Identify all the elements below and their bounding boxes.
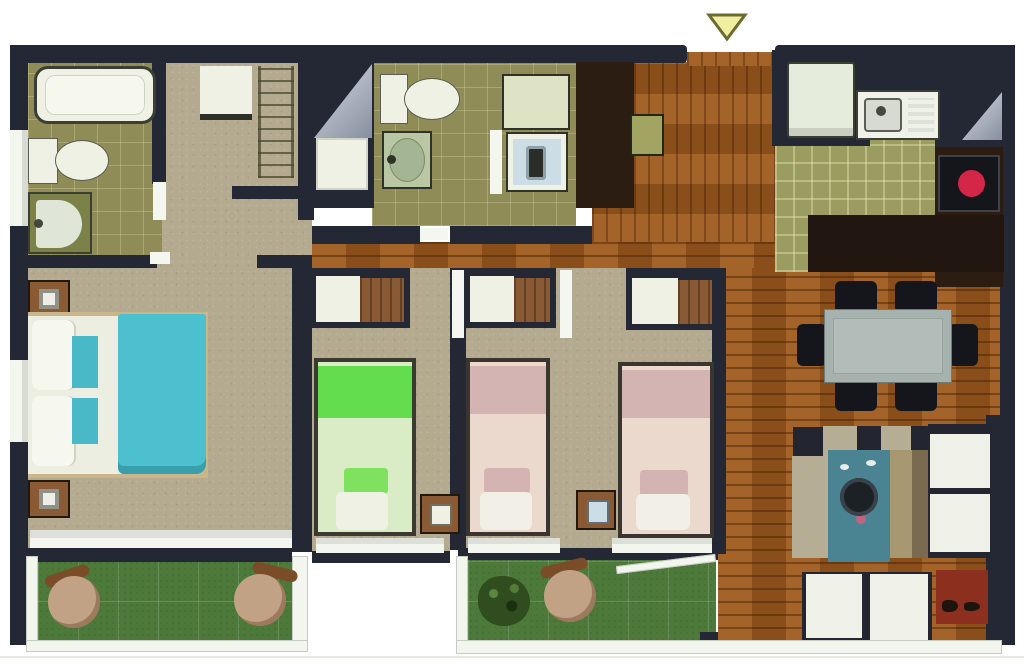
lamp-master-bottom bbox=[39, 489, 59, 509]
left-wall-window2 bbox=[10, 360, 28, 442]
dining-chair-right bbox=[948, 324, 978, 366]
wall-bath2-south-a bbox=[312, 226, 420, 244]
wall-hall-stub bbox=[232, 186, 298, 199]
rug-dot2 bbox=[866, 460, 876, 466]
terrace1-rail-bottom bbox=[26, 640, 308, 652]
armchair-right bbox=[928, 424, 992, 558]
bed2-wardrobe-shelf bbox=[360, 278, 404, 322]
bed3-wardrobeA-frame bbox=[464, 268, 556, 328]
shower-tray bbox=[316, 138, 368, 190]
terrace1-chair2 bbox=[234, 574, 286, 626]
bed2-pillow bbox=[336, 492, 388, 530]
bed2-nightstand bbox=[420, 494, 460, 534]
bathtub bbox=[34, 66, 156, 124]
cooktop bbox=[938, 155, 1000, 212]
bed2-nightstand-pane bbox=[430, 504, 452, 526]
wall-master-north bbox=[257, 255, 312, 268]
entry-doorway-floor bbox=[687, 52, 775, 66]
bathtub-basin bbox=[45, 75, 145, 115]
rug-dot1 bbox=[840, 464, 849, 470]
bed3-door-leaf1 bbox=[452, 270, 464, 338]
bedB-blanket bbox=[622, 370, 710, 418]
bed3-windowB bbox=[612, 538, 712, 553]
cooktop-burner bbox=[958, 170, 985, 197]
master-pillow2 bbox=[32, 396, 76, 466]
master-blanket bbox=[118, 314, 206, 474]
bedB-accent-pillow bbox=[640, 470, 688, 496]
coffee-table bbox=[840, 478, 878, 516]
master-bed bbox=[28, 312, 208, 478]
sofa-cushion2 bbox=[870, 574, 928, 640]
bed2-accent-pillow bbox=[344, 468, 388, 494]
sink-vanity2 bbox=[382, 131, 432, 189]
shoe-left bbox=[942, 600, 958, 612]
bed3-nightstand bbox=[576, 490, 616, 530]
sofa-cushion1 bbox=[806, 574, 862, 638]
master-accent-pillow1 bbox=[72, 336, 98, 388]
master-accent-pillow2 bbox=[72, 398, 98, 444]
bed3-single-bedB bbox=[618, 362, 714, 538]
sofa-side-right-tan bbox=[890, 450, 912, 558]
sofa-bottom bbox=[802, 572, 932, 642]
bath2-south-door-leaf bbox=[420, 228, 448, 240]
terrace2-shrub bbox=[478, 576, 530, 626]
terrace1-chair1 bbox=[48, 576, 100, 628]
washing-machine bbox=[506, 132, 568, 192]
master-window bbox=[30, 530, 292, 548]
dining-table-top bbox=[833, 318, 943, 374]
red-doormat bbox=[936, 570, 988, 624]
wall-kitchen-top-patch bbox=[854, 55, 940, 93]
kitchen-faucet bbox=[876, 106, 886, 116]
balcony-rail-bottom bbox=[456, 640, 1002, 654]
bedB-pillow bbox=[636, 494, 690, 530]
bedA-pillow bbox=[480, 492, 532, 530]
bed3-wardrobeB-frame bbox=[626, 268, 718, 330]
hall-closet bbox=[200, 66, 252, 120]
wall-bath1-south bbox=[25, 255, 157, 268]
master-door-leaf bbox=[150, 252, 170, 264]
bed3-wardrobeB-door bbox=[632, 278, 678, 324]
bed3-wardrobeA-door bbox=[470, 276, 514, 322]
bed3-wardrobeA-shelf bbox=[514, 278, 550, 322]
nightstand-master-bottom bbox=[28, 480, 70, 518]
wall-master-east bbox=[292, 268, 312, 552]
bedA-accent-pillow bbox=[484, 468, 530, 494]
bed3-single-bedA bbox=[466, 358, 550, 536]
bed3-wardrobeB-shelf bbox=[678, 280, 712, 324]
toilet1-tank bbox=[28, 138, 58, 184]
armchair-cushion-bottom bbox=[930, 494, 990, 552]
floor-plan-canvas: { "type": "apartment-floor-plan", "palet… bbox=[0, 0, 1024, 669]
hall-shelving-rack bbox=[258, 66, 294, 178]
left-wall-window1 bbox=[10, 130, 28, 226]
shoe-right bbox=[964, 602, 980, 611]
bath2-door-leaf bbox=[490, 130, 502, 194]
refrigerator bbox=[787, 62, 855, 138]
armchair-cushion-top bbox=[930, 434, 990, 488]
bathroom1-door-leaf bbox=[153, 182, 166, 220]
bed2-blanket bbox=[318, 366, 412, 418]
sink1-faucet bbox=[34, 219, 43, 228]
sofa-back-dark1 bbox=[793, 427, 823, 456]
lamp-master-top bbox=[39, 289, 59, 309]
terrace2-chair bbox=[544, 570, 596, 622]
entry-arrow-icon bbox=[706, 12, 748, 42]
terrace1-rail-left bbox=[26, 556, 38, 652]
bedA-blanket bbox=[470, 366, 546, 414]
bed3-windowA bbox=[468, 538, 560, 553]
wall-top-left bbox=[10, 45, 687, 63]
dining-table bbox=[824, 309, 952, 383]
bed2-window bbox=[316, 538, 444, 553]
laundry-counter bbox=[502, 74, 570, 130]
kitchen-sink-counter bbox=[856, 90, 940, 140]
page-edge-line bbox=[0, 656, 1024, 658]
bed2-wardrobe-frame bbox=[310, 268, 410, 328]
bed3-nightstand-pane bbox=[587, 500, 609, 524]
kitchen-bar-counter bbox=[808, 215, 1004, 272]
toilet2-bowl bbox=[404, 78, 460, 120]
sink2-faucet bbox=[387, 155, 396, 164]
wall-bath2-south-b bbox=[450, 226, 592, 244]
bed3-door-leaf2 bbox=[560, 270, 572, 338]
bed2-single-bed bbox=[314, 358, 416, 536]
entry-cabinet bbox=[630, 114, 664, 156]
wall-bath2-east-block bbox=[576, 62, 634, 208]
sink-vanity1 bbox=[28, 192, 92, 254]
bed2-wardrobe-door bbox=[316, 276, 360, 322]
sofa-side-left bbox=[792, 456, 828, 558]
wall-master-window-sill bbox=[28, 548, 292, 562]
master-pillow1 bbox=[32, 320, 76, 390]
terrace2-rail-left bbox=[456, 556, 468, 652]
kitchen-drainboard bbox=[908, 98, 934, 132]
dining-chair-left bbox=[797, 324, 827, 366]
washing-machine-drum bbox=[526, 146, 546, 180]
toilet1-bowl bbox=[55, 140, 109, 181]
